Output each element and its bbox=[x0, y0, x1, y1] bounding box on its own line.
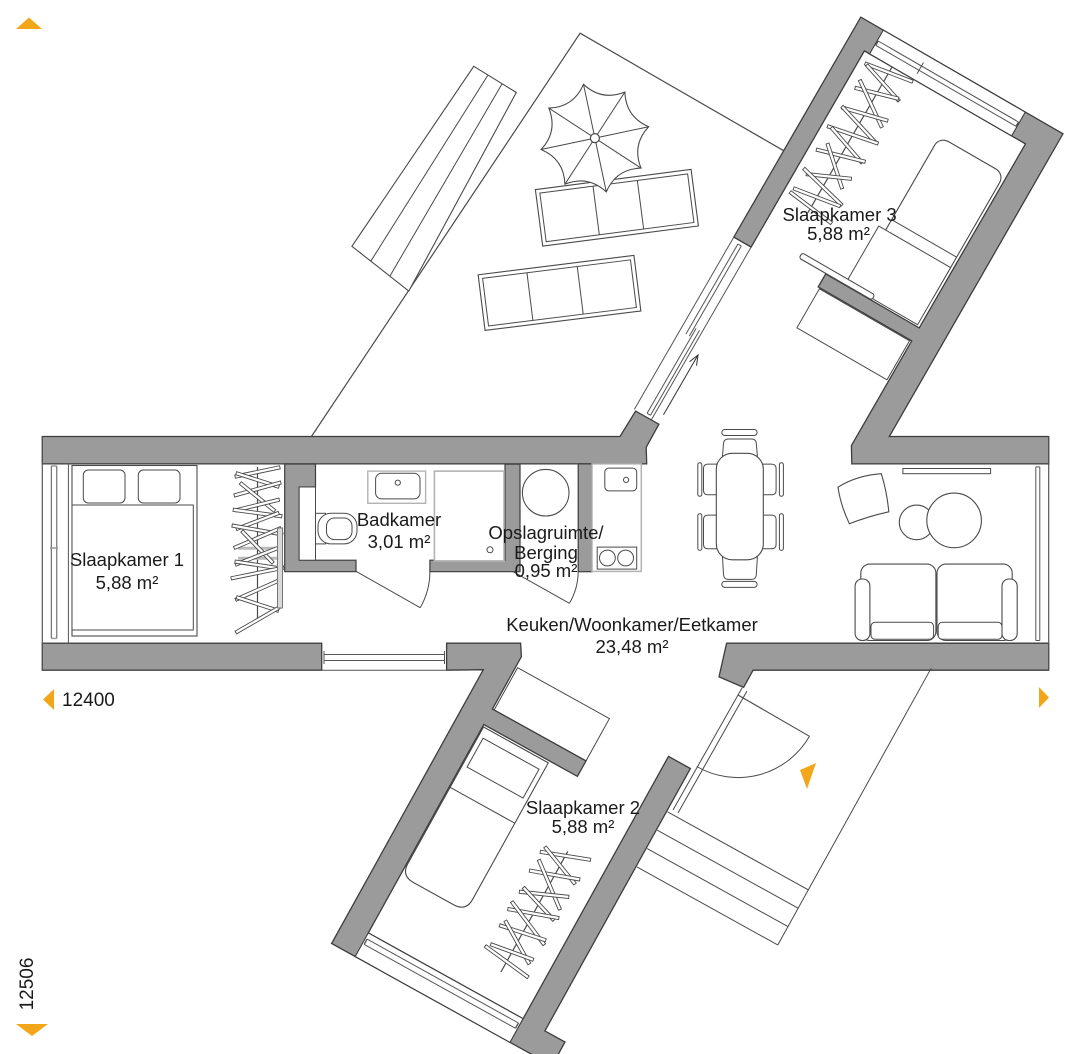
svg-text:0,95 m²: 0,95 m² bbox=[515, 560, 578, 581]
svg-text:Opslagruimte/: Opslagruimte/ bbox=[488, 522, 604, 543]
svg-text:5,88 m²: 5,88 m² bbox=[807, 223, 870, 244]
svg-text:3,01 m²: 3,01 m² bbox=[368, 531, 431, 552]
svg-text:23,48 m²: 23,48 m² bbox=[595, 636, 668, 657]
svg-text:Slaapkamer 3: Slaapkamer 3 bbox=[783, 204, 897, 225]
svg-text:5,88 m²: 5,88 m² bbox=[96, 572, 159, 593]
svg-text:12506: 12506 bbox=[17, 958, 38, 1011]
svg-text:5,88 m²: 5,88 m² bbox=[552, 816, 615, 837]
svg-text:Slaapkamer 1: Slaapkamer 1 bbox=[70, 549, 184, 570]
svg-text:12400: 12400 bbox=[62, 690, 115, 711]
svg-text:Badkamer: Badkamer bbox=[357, 509, 441, 530]
svg-text:Keuken/Woonkamer/Eetkamer: Keuken/Woonkamer/Eetkamer bbox=[506, 614, 758, 635]
svg-text:Slaapkamer 2: Slaapkamer 2 bbox=[526, 797, 640, 818]
